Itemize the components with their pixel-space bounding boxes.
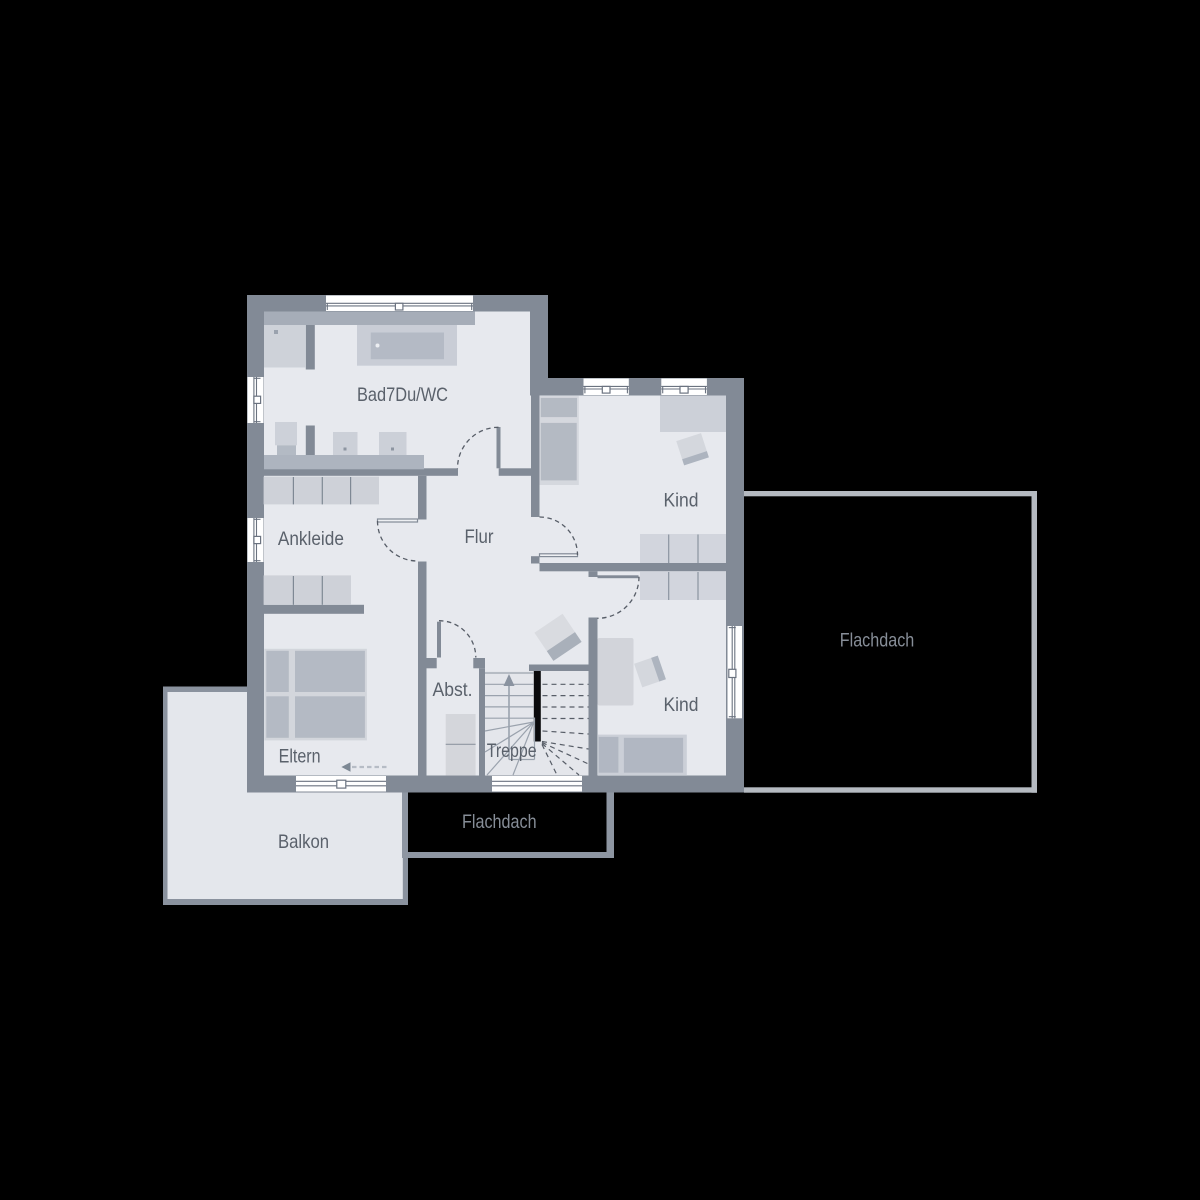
- svg-text:Kind: Kind: [664, 694, 699, 716]
- svg-text:Treppe: Treppe: [487, 740, 537, 762]
- svg-text:Kind: Kind: [664, 489, 699, 511]
- svg-text:Eltern: Eltern: [279, 746, 321, 768]
- svg-text:Flur: Flur: [465, 526, 494, 548]
- svg-text:Ankleide: Ankleide: [278, 528, 344, 550]
- svg-text:Flachdach: Flachdach: [462, 811, 537, 833]
- svg-text:Balkon: Balkon: [278, 831, 329, 853]
- svg-text:Bad7Du/WC: Bad7Du/WC: [357, 384, 448, 406]
- svg-text:Flachdach: Flachdach: [840, 630, 915, 652]
- svg-text:Abst.: Abst.: [433, 679, 473, 701]
